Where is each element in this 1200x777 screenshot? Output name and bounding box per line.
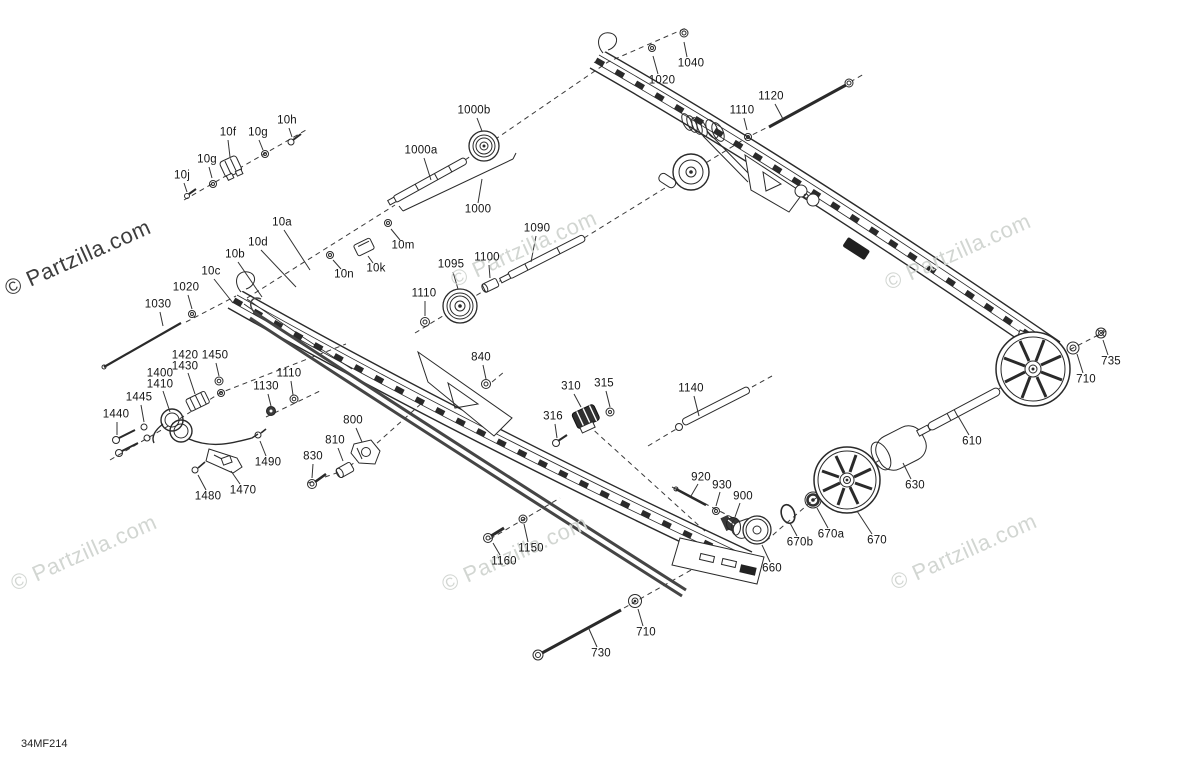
- part-label-310: 310: [561, 381, 581, 393]
- leader-line-10g: [259, 140, 263, 150]
- leader-line-630: [903, 463, 911, 479]
- leader-line-800: [356, 428, 362, 442]
- part-label-930: 930: [712, 480, 732, 492]
- leader-line-830: [312, 464, 313, 478]
- part-label-1450: 1450: [202, 350, 228, 362]
- leader-line-1140: [694, 396, 699, 416]
- sheet-code: 34MF214: [21, 738, 67, 750]
- part-label-1020: 1020: [649, 75, 675, 87]
- part-label-840: 840: [471, 352, 491, 364]
- leader-line-1410: [163, 391, 170, 412]
- leader-line-1430: [188, 373, 195, 394]
- leader-line-310: [574, 394, 581, 407]
- part-label-670b: 670b: [787, 537, 813, 549]
- leader-line-710: [638, 609, 643, 626]
- leader-line-316: [555, 424, 557, 438]
- part-label-735: 735: [1101, 356, 1121, 368]
- leader-line-10h: [289, 128, 292, 137]
- leader-line-1110: [291, 381, 293, 395]
- part-label-10j: 10j: [174, 170, 190, 182]
- part-label-10g-2: 10g: [197, 154, 217, 166]
- part-label-1020-2: 1020: [173, 282, 199, 294]
- leader-line-315: [606, 391, 610, 407]
- part-label-1480: 1480: [195, 491, 221, 503]
- leader-line-1490: [260, 441, 266, 456]
- leader-line-10b: [238, 262, 262, 297]
- part-label-1150: 1150: [518, 543, 544, 555]
- part-label-1130: 1130: [253, 381, 279, 393]
- leader-line-735: [1103, 340, 1108, 355]
- part-label-800: 800: [343, 415, 363, 427]
- part-label-630: 630: [905, 480, 925, 492]
- part-label-10b: 10b: [225, 249, 245, 261]
- part-label-1490: 1490: [255, 457, 281, 469]
- part-label-1000b: 1000b: [458, 105, 491, 117]
- part-label-10d: 10d: [248, 237, 268, 249]
- leader-line-1130: [268, 394, 271, 406]
- leader-line-10c: [214, 279, 233, 303]
- leader-line-1000b: [477, 118, 482, 131]
- leader-line-10g: [209, 167, 212, 178]
- leader-line-10a: [284, 230, 310, 270]
- part-label-10a: 10a: [272, 217, 292, 229]
- leader-line-1450: [216, 363, 219, 376]
- leader-line-1470: [231, 471, 240, 484]
- leader-line-810: [338, 448, 343, 461]
- leader-line-730: [589, 629, 597, 647]
- part-label-1440: 1440: [103, 409, 129, 421]
- leader-line-1480: [198, 475, 206, 490]
- leader-line-660: [762, 545, 770, 562]
- part-label-10h: 10h: [277, 115, 297, 127]
- leader-line-1040: [684, 42, 687, 57]
- leader-line-1020: [188, 295, 192, 309]
- leader-line-1000: [478, 179, 482, 203]
- part-label-10c: 10c: [201, 266, 220, 278]
- leader-line-1000a: [424, 158, 431, 180]
- part-label-710-2: 710: [636, 627, 656, 639]
- part-label-1040: 1040: [678, 58, 704, 70]
- leader-line-710: [1077, 354, 1083, 373]
- part-label-1110-3: 1110: [277, 368, 302, 380]
- part-label-1000a: 1000a: [405, 145, 438, 157]
- leader-line-1120: [775, 104, 783, 119]
- part-label-810: 810: [325, 435, 345, 447]
- part-label-1410: 1410: [147, 379, 173, 391]
- part-label-830: 830: [303, 451, 323, 463]
- part-label-1120: 1120: [758, 91, 784, 103]
- leader-line-930: [716, 492, 720, 506]
- leader-line-10d: [261, 250, 296, 287]
- part-label-10m: 10m: [392, 240, 415, 252]
- part-label-1095: 1095: [438, 259, 464, 271]
- part-label-660: 660: [762, 563, 782, 575]
- part-label-730: 730: [591, 648, 611, 660]
- leader-line-920: [691, 484, 698, 496]
- part-label-10f: 10f: [220, 127, 237, 139]
- part-label-610: 610: [962, 436, 982, 448]
- leader-line-1445: [141, 405, 144, 422]
- part-label-10g: 10g: [248, 127, 268, 139]
- part-label-900: 900: [733, 491, 753, 503]
- part-label-1100: 1100: [474, 252, 500, 264]
- leader-line-610: [958, 416, 969, 435]
- part-label-1110: 1110: [730, 105, 755, 117]
- part-label-10n: 10n: [334, 269, 354, 281]
- part-label-316: 316: [543, 411, 563, 423]
- part-label-710: 710: [1076, 374, 1096, 386]
- part-label-10k: 10k: [366, 263, 385, 275]
- part-label-1430: 1430: [172, 361, 198, 373]
- leader-line-1020: [653, 56, 658, 74]
- part-label-1140: 1140: [678, 383, 704, 395]
- leader-line-670a: [817, 508, 828, 528]
- leader-line-10f: [228, 140, 230, 157]
- leader-line-1030: [160, 312, 163, 326]
- leader-line-840: [483, 365, 486, 379]
- part-label-1470: 1470: [230, 485, 256, 497]
- leader-line-1110: [744, 118, 747, 130]
- leader-line-10j: [184, 183, 187, 192]
- leader-line-900: [735, 503, 740, 517]
- part-label-1445: 1445: [126, 392, 152, 404]
- part-label-1160: 1160: [491, 556, 517, 568]
- part-label-920: 920: [691, 472, 711, 484]
- leader-line-670: [857, 511, 872, 534]
- part-label-670a: 670a: [818, 529, 844, 541]
- part-label-315: 315: [594, 378, 614, 390]
- part-label-1030: 1030: [145, 299, 171, 311]
- part-label-670: 670: [867, 535, 887, 547]
- part-label-1090: 1090: [524, 223, 550, 235]
- part-label-1110-2: 1110: [412, 288, 437, 300]
- part-label-1000: 1000: [465, 204, 491, 216]
- leader-line-670b: [790, 523, 797, 536]
- parts-diagram-page: © Partzilla.com© Partzilla.com© Partzill…: [0, 0, 1200, 777]
